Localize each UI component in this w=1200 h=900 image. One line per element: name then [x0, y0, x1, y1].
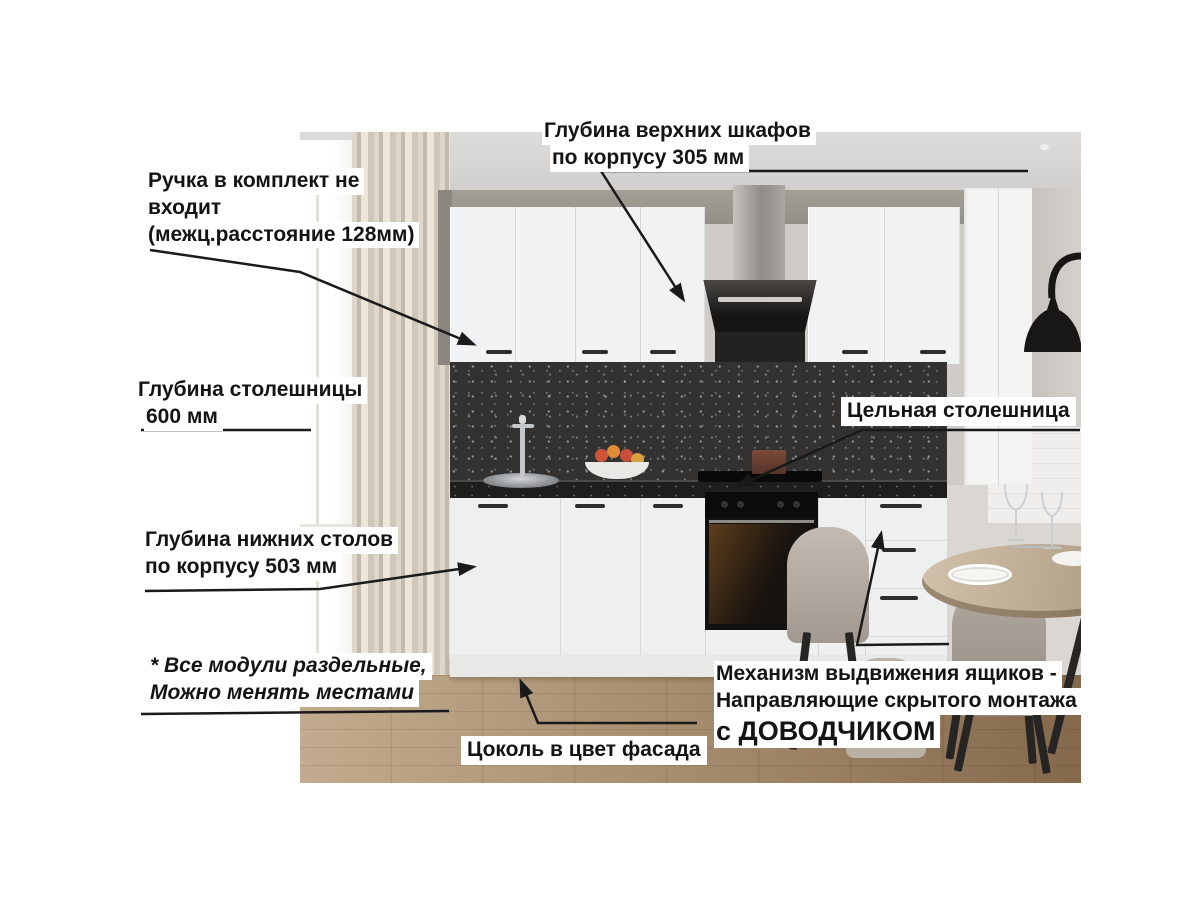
label-line: 600 мм: [144, 404, 223, 431]
label-line: Направляющие скрытого монтажа: [714, 688, 1082, 715]
label-handle-note: Ручка в комплект не входит (межц.расстоя…: [146, 168, 419, 248]
label-plinth-note: Цоколь в цвет фасада: [461, 736, 707, 765]
label-line: Цельная столешница: [841, 397, 1076, 426]
label-line: с ДОВОДЧИКОМ: [714, 715, 940, 749]
label-line: Цоколь в цвет фасада: [461, 736, 707, 765]
label-line: Глубина столешницы: [136, 377, 367, 404]
label-line: * Все модули раздельные,: [148, 653, 432, 680]
lamp-arm: [1052, 256, 1081, 298]
label-line: Механизм выдвижения ящиков -: [714, 661, 1062, 688]
label-line: (межц.расстояние 128мм): [146, 222, 419, 249]
label-base-cabinet-depth: Глубина нижних столов по корпусу 503 мм: [143, 527, 398, 581]
label-line: Глубина нижних столов: [143, 527, 398, 554]
label-line: по корпусу 305 мм: [550, 145, 749, 172]
label-drawer-mechanism: Механизм выдвижения ящиков - Направляющи…: [714, 661, 1082, 748]
label-modules-note: * Все модули раздельные, Можно менять ме…: [148, 653, 432, 707]
label-line: Можно менять местами: [148, 680, 419, 707]
label-line: по корпусу 503 мм: [143, 554, 342, 581]
label-line: Глубина верхних шкафов: [542, 118, 816, 145]
label-line: Ручка в комплект не: [146, 168, 364, 195]
wine-glasses: [1005, 484, 1062, 548]
lamp-shade: [1024, 294, 1081, 352]
label-upper-cabinet-depth: Глубина верхних шкафов по корпусу 305 мм: [542, 118, 816, 172]
label-line: входит: [146, 195, 226, 222]
label-countertop-depth: Глубина столешницы 600 мм: [136, 377, 367, 431]
label-solid-countertop: Цельная столешница: [841, 397, 1076, 426]
